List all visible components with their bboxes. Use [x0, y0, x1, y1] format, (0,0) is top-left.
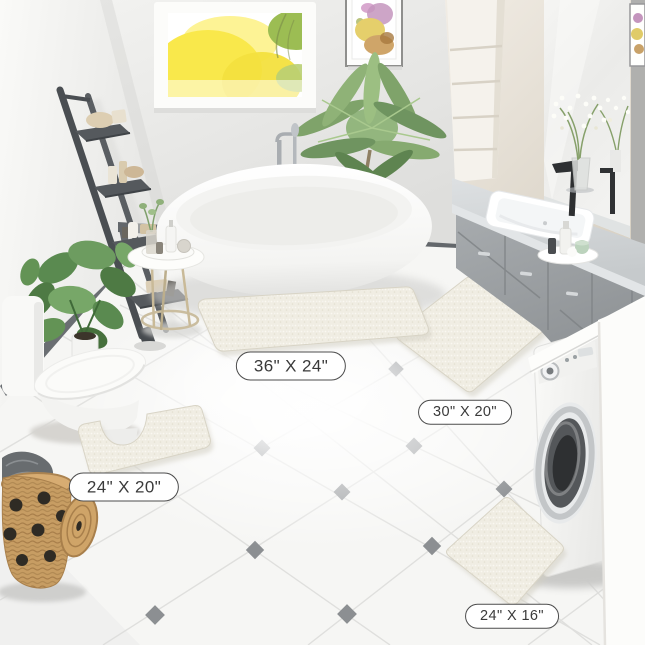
size-label-24x20: 24" X 20"	[69, 473, 179, 502]
window-frame-shadow	[154, 108, 316, 113]
wall-niche-shelves	[447, 0, 505, 182]
laundry-cabinet	[598, 300, 645, 645]
bathroom-scene	[0, 0, 645, 645]
window	[154, 2, 324, 113]
mirror-reflected-art	[630, 4, 645, 66]
size-label-24x16: 24" X 16"	[465, 604, 559, 629]
size-label-36x24: 36" X 24"	[236, 352, 346, 381]
size-label-30x20: 30" X 20"	[418, 400, 512, 425]
bathroom-product-image: 36" X 24" 30" X 20" 24" X 20" 24" X 16"	[0, 0, 645, 645]
vanity-mirror	[544, 0, 630, 238]
